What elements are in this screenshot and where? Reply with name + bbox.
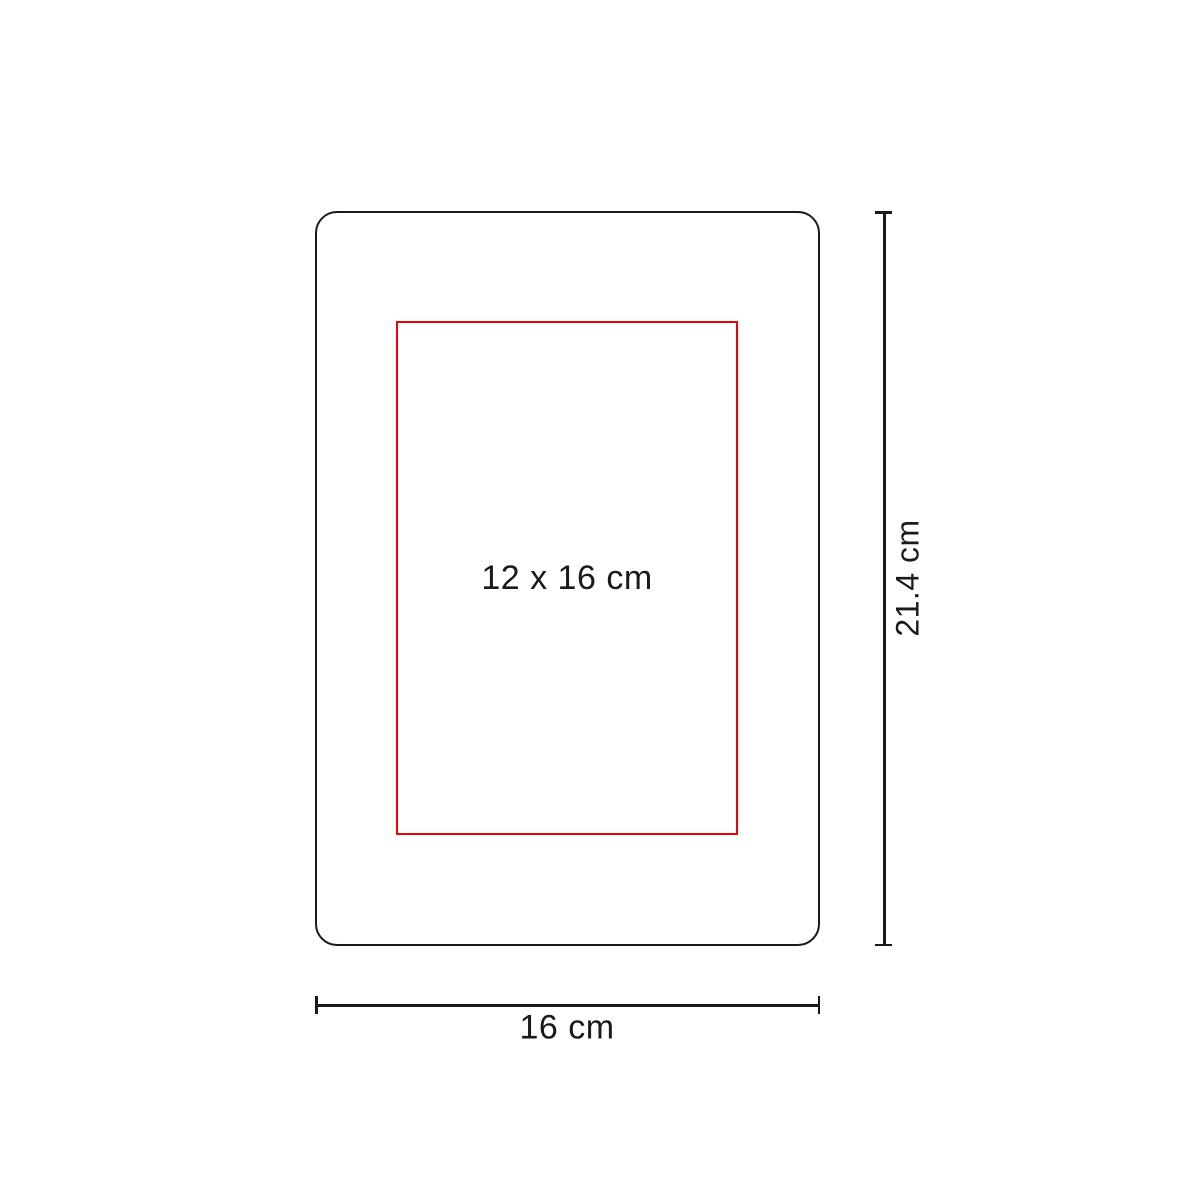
height-dimension-label: 21.4 cm: [890, 519, 927, 636]
print-area-rect: 12 x 16 cm: [396, 321, 738, 835]
width-dimension-line: [315, 1004, 820, 1007]
print-area-size-label: 12 x 16 cm: [481, 559, 652, 598]
height-dimension-top-cap: [875, 211, 892, 214]
width-dimension-right-cap: [818, 996, 821, 1014]
diagram-canvas: 12 x 16 cm 21.4 cm 16 cm: [0, 0, 1200, 1200]
width-dimension-left-cap: [315, 996, 318, 1014]
width-dimension-label: 16 cm: [519, 1009, 614, 1048]
height-dimension-bottom-cap: [875, 944, 892, 947]
height-dimension-line: [883, 211, 886, 946]
